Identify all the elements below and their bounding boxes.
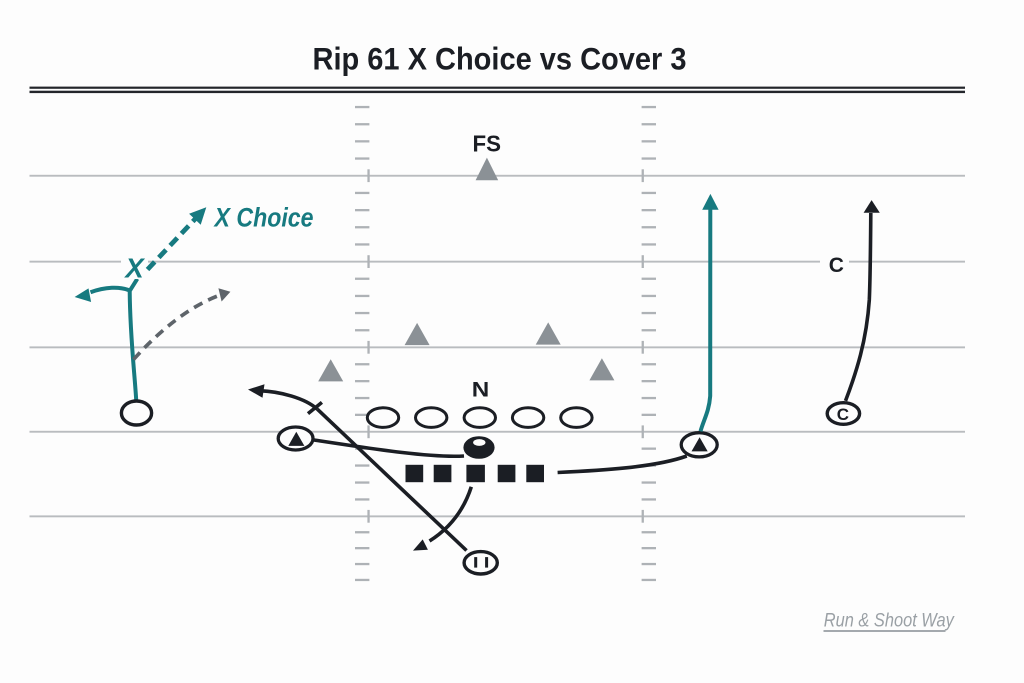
svg-text:Run & Shoot Way: Run & Shoot Way [824,611,955,632]
svg-text:N: N [472,379,490,402]
svg-text:FS: FS [473,131,502,157]
svg-text:X: X [123,252,145,283]
svg-text:X Choice: X Choice [213,202,314,232]
svg-text:C: C [829,253,844,277]
svg-text:Rip 61 X Choice vs Cover 3: Rip 61 X Choice vs Cover 3 [313,40,687,76]
svg-text:C: C [837,405,849,424]
